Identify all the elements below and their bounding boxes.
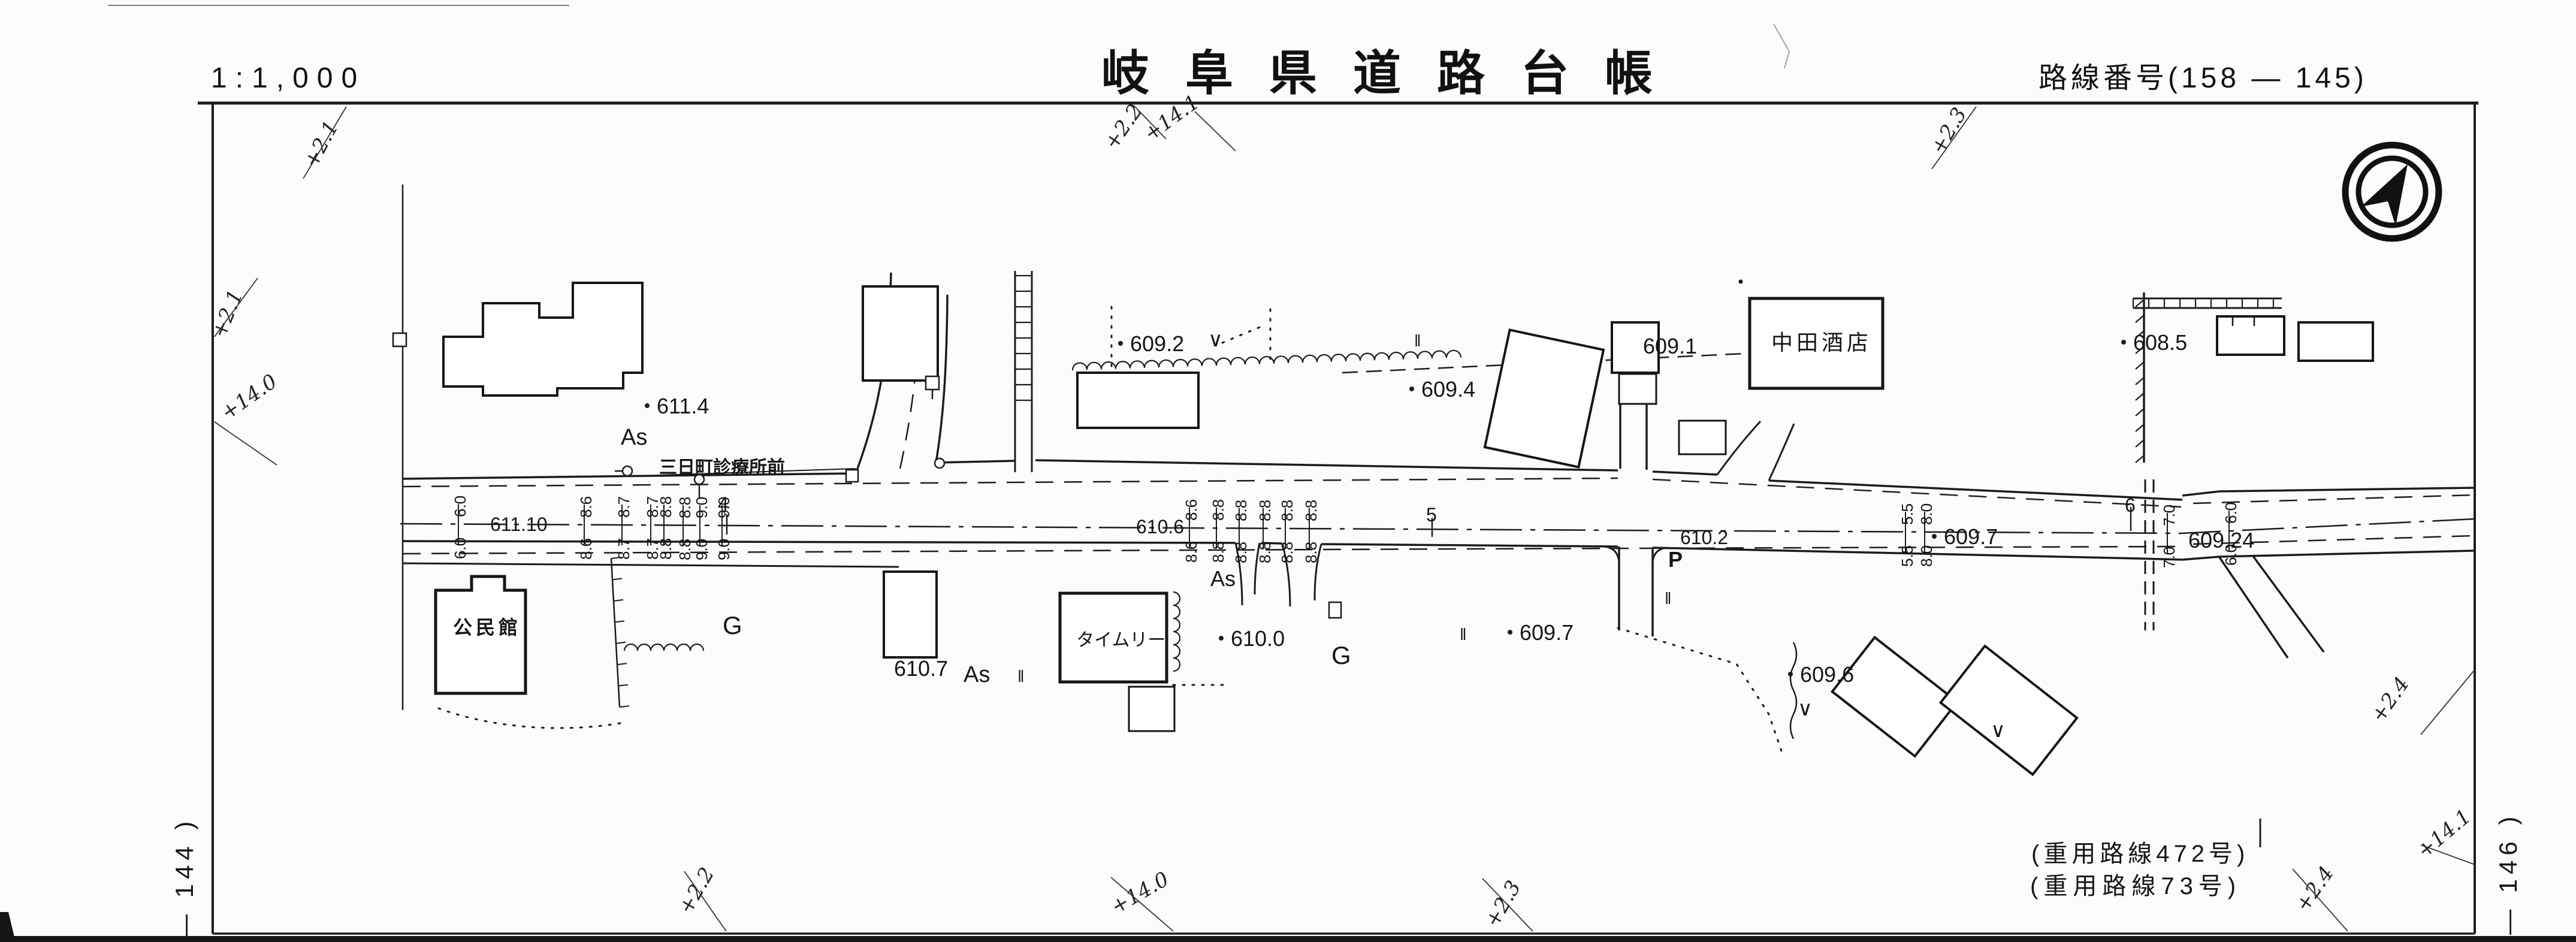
wall-hatch xyxy=(2136,424,2144,431)
map-label: 609.1 xyxy=(1643,334,1697,358)
wall-hatch xyxy=(2136,409,2144,416)
point-dot xyxy=(1508,630,1512,635)
map-label: G xyxy=(723,611,742,639)
fence-tick xyxy=(617,663,627,665)
map-label: タイムリー xyxy=(1076,630,1165,650)
width-value: 8.8 xyxy=(1256,542,1274,563)
leader-line xyxy=(215,422,277,465)
point-dot xyxy=(1788,672,1793,677)
sign-box xyxy=(846,470,858,482)
hedge-line xyxy=(624,644,703,651)
width-value: 6.0 xyxy=(451,496,469,517)
margin-texts: (重用路線472号) (重用路線73号) ― 144 ) ― 146 ) xyxy=(170,812,2522,940)
building-north xyxy=(863,286,938,381)
grade-annotation: +14.1 xyxy=(2412,805,2476,864)
overlap-route-note: (重用路線73号) xyxy=(2030,873,2241,899)
map-label: ∨ xyxy=(1991,719,2006,742)
building-cluster-nw xyxy=(443,283,642,395)
grade-annotation: +14.0 xyxy=(217,370,282,425)
margin-annotations: +2.1+2.2+14.1+2.3+2.1+14.0+2.4+14.1+2.2+… xyxy=(207,90,2476,931)
fence-tick xyxy=(618,685,628,686)
wall-hatch xyxy=(2136,300,2144,307)
width-value: 9.0 xyxy=(693,539,711,560)
sign-box xyxy=(926,376,939,390)
leader-line xyxy=(1195,111,1236,151)
point-dot xyxy=(1932,534,1937,539)
building-south xyxy=(1129,687,1174,731)
width-value: 9.0 xyxy=(715,497,733,518)
grade-annotation: +2.1 xyxy=(299,117,343,172)
width-value: 8.6 xyxy=(577,538,595,560)
map-label: P xyxy=(1668,547,1683,572)
point-dot xyxy=(1118,341,1123,346)
width-value: 7.0 xyxy=(2160,505,2178,526)
map-label: As xyxy=(621,425,647,450)
south-road-edge xyxy=(1321,544,1618,547)
width-value: 6.0 xyxy=(451,538,469,559)
building-rotated-se xyxy=(1941,646,2077,775)
width-value: 9.0 xyxy=(693,497,711,518)
point-dot xyxy=(2121,340,2126,345)
north-road-edge xyxy=(1653,472,1717,475)
grade-annotation: +2.4 xyxy=(2291,862,2339,916)
north-compass-icon xyxy=(2345,145,2439,238)
map-label: 5 xyxy=(1426,504,1437,526)
dashed-road-line xyxy=(403,478,1618,487)
width-value: 8.6 xyxy=(577,496,595,518)
dashed-road-line xyxy=(1653,479,2181,507)
wavy-boundary xyxy=(1790,642,1796,739)
driveway-curve xyxy=(1769,424,1794,481)
width-value: 6.0 xyxy=(2222,544,2240,566)
map-label: As xyxy=(964,662,990,687)
utility-pole xyxy=(623,466,632,476)
width-value: 8.8 xyxy=(1302,542,1320,563)
north-road-edge xyxy=(936,461,1015,463)
building-slanted xyxy=(1485,330,1603,467)
small-structure xyxy=(393,333,406,346)
wall-hatch xyxy=(2136,455,2144,463)
map-label: 609.7 xyxy=(1944,524,1998,549)
south-road-edge xyxy=(403,541,1236,543)
width-value: 9.0 xyxy=(715,539,733,560)
wall-hatch xyxy=(2136,393,2144,400)
map-label: 6 xyxy=(2125,494,2136,516)
fence-tick xyxy=(614,600,623,601)
wall-hatch xyxy=(2136,378,2144,385)
width-value: 8.8 xyxy=(1209,541,1227,563)
wall-hatch xyxy=(2136,440,2144,447)
road-ledger-sheet: 1:1,000 岐阜県道路台帳 路線番号(158 ― 145) xyxy=(0,0,2576,942)
dotted-line xyxy=(1222,325,1266,343)
width-value: 8.0 xyxy=(1917,545,1935,567)
grade-annotation: +2.4 xyxy=(2366,672,2414,727)
width-value: 5.5 xyxy=(1898,503,1916,525)
north-road-edge xyxy=(1035,460,1618,470)
overlap-route-note: (重用路線472号) xyxy=(2031,841,2249,867)
width-value: 8.6 xyxy=(1182,499,1200,521)
grade-annotation: +2.3 xyxy=(1481,877,1526,932)
map-label: ‖ xyxy=(1460,625,1467,644)
grade-annotation: +14.0 xyxy=(1107,867,1173,919)
width-value: 8.8 xyxy=(1278,500,1296,521)
width-value: 8.8 xyxy=(676,539,694,560)
map-label: 609.2 xyxy=(1130,331,1184,356)
wall-hatch xyxy=(2136,362,2144,369)
scan-corner-mark xyxy=(0,912,16,942)
map-label: ‖ xyxy=(1665,589,1672,608)
southeast-street-edge xyxy=(2253,556,2324,652)
dotted-line xyxy=(1618,628,1783,756)
width-value: 8.8 xyxy=(1278,542,1296,563)
map-label: ∨ xyxy=(1798,698,1813,720)
map-label: 609.4 xyxy=(1421,377,1475,401)
scan-edge-bar xyxy=(0,936,2576,942)
leader-line xyxy=(2421,671,2474,735)
width-value: 8.8 xyxy=(1232,542,1250,563)
spot-dot xyxy=(1739,280,1743,284)
width-value: 8.8 xyxy=(676,497,694,518)
point-dot xyxy=(1219,636,1224,641)
building-north xyxy=(1077,373,1198,428)
width-value: 8.8 xyxy=(1232,500,1250,521)
building-south xyxy=(884,572,937,657)
width-value: 7.0 xyxy=(2160,547,2178,568)
map-label: ‖ xyxy=(1414,331,1421,350)
wall-hatch xyxy=(2136,315,2144,322)
building-rotated-se xyxy=(1832,638,1958,756)
map-label: ‖ xyxy=(1017,667,1025,686)
map-label: 三日町診療所前 xyxy=(659,457,785,478)
width-value: 8.7 xyxy=(615,496,633,518)
grade-annotation: +2.2 xyxy=(674,864,720,919)
road-ledger-map: 1:1,000 岐阜県道路台帳 路線番号(158 ― 145) xyxy=(0,0,2576,942)
adjacent-sheet-left: ― 144 ) xyxy=(170,817,198,940)
grade-annotation: +2.3 xyxy=(1926,104,1972,159)
map-label: 公民館 xyxy=(453,617,521,638)
width-value: 6.0 xyxy=(2222,502,2240,524)
southeast-street-edge xyxy=(2219,557,2288,658)
building-far-east xyxy=(2299,322,2373,361)
width-value: 8.8 xyxy=(657,538,675,560)
building-northeast xyxy=(2217,316,2284,355)
scale-label: 1:1,000 xyxy=(211,62,366,94)
fence-tick xyxy=(616,642,626,644)
sheet-frame xyxy=(108,5,2478,934)
width-value: 8.6 xyxy=(1182,541,1200,563)
building-north xyxy=(1619,374,1656,404)
point-dot xyxy=(1409,387,1414,391)
width-value: 8.7 xyxy=(615,538,633,560)
map-label: 609.7 xyxy=(1520,620,1574,645)
dotted-line xyxy=(439,708,623,728)
width-value: 5.5 xyxy=(1898,545,1916,567)
width-value: 8.8 xyxy=(1209,499,1227,521)
fence-tick xyxy=(612,578,622,579)
south-sidewalk-edge xyxy=(403,563,899,567)
width-value: 8.8 xyxy=(1256,500,1274,521)
route-number: 路線番号(158 ― 145) xyxy=(2039,62,2367,94)
fence-line xyxy=(611,558,620,707)
map-label: 610.2 xyxy=(1680,527,1728,548)
width-value: 8.8 xyxy=(657,496,675,518)
map-label: 609.6 xyxy=(1800,662,1854,687)
header: 1:1,000 岐阜県道路台帳 路線番号(158 ― 145) xyxy=(211,47,2367,100)
small-structure xyxy=(1679,421,1726,454)
map-label: 608.5 xyxy=(2133,330,2187,355)
map-label: As xyxy=(1210,566,1236,591)
fence-tick xyxy=(615,621,624,622)
map-label: 610.0 xyxy=(1231,626,1285,651)
map-label: 610.6 xyxy=(1136,516,1184,538)
adjacent-sheet-right: ― 146 ) xyxy=(2494,812,2522,935)
utility-pole xyxy=(935,458,944,468)
corner-arc xyxy=(1653,548,1667,562)
map-label: 611.4 xyxy=(657,394,709,418)
map-label: 611.10 xyxy=(490,514,548,535)
sign-box xyxy=(1329,602,1341,618)
map-label: G xyxy=(1331,641,1351,669)
map-label: 610.7 xyxy=(894,656,948,681)
map-label: ∨ xyxy=(1208,328,1223,351)
scan-smudge xyxy=(1774,24,1789,68)
road-edges xyxy=(403,185,2475,710)
width-value: 8.0 xyxy=(1917,503,1935,525)
width-value: 8.8 xyxy=(1302,500,1320,521)
point-dot xyxy=(645,403,650,408)
north-road-edge xyxy=(2182,488,2475,496)
map-label: 中田酒店 xyxy=(1771,330,1872,355)
hedge-lines xyxy=(624,351,1461,671)
hedge-line xyxy=(1173,592,1180,671)
fence-tick xyxy=(620,706,629,707)
